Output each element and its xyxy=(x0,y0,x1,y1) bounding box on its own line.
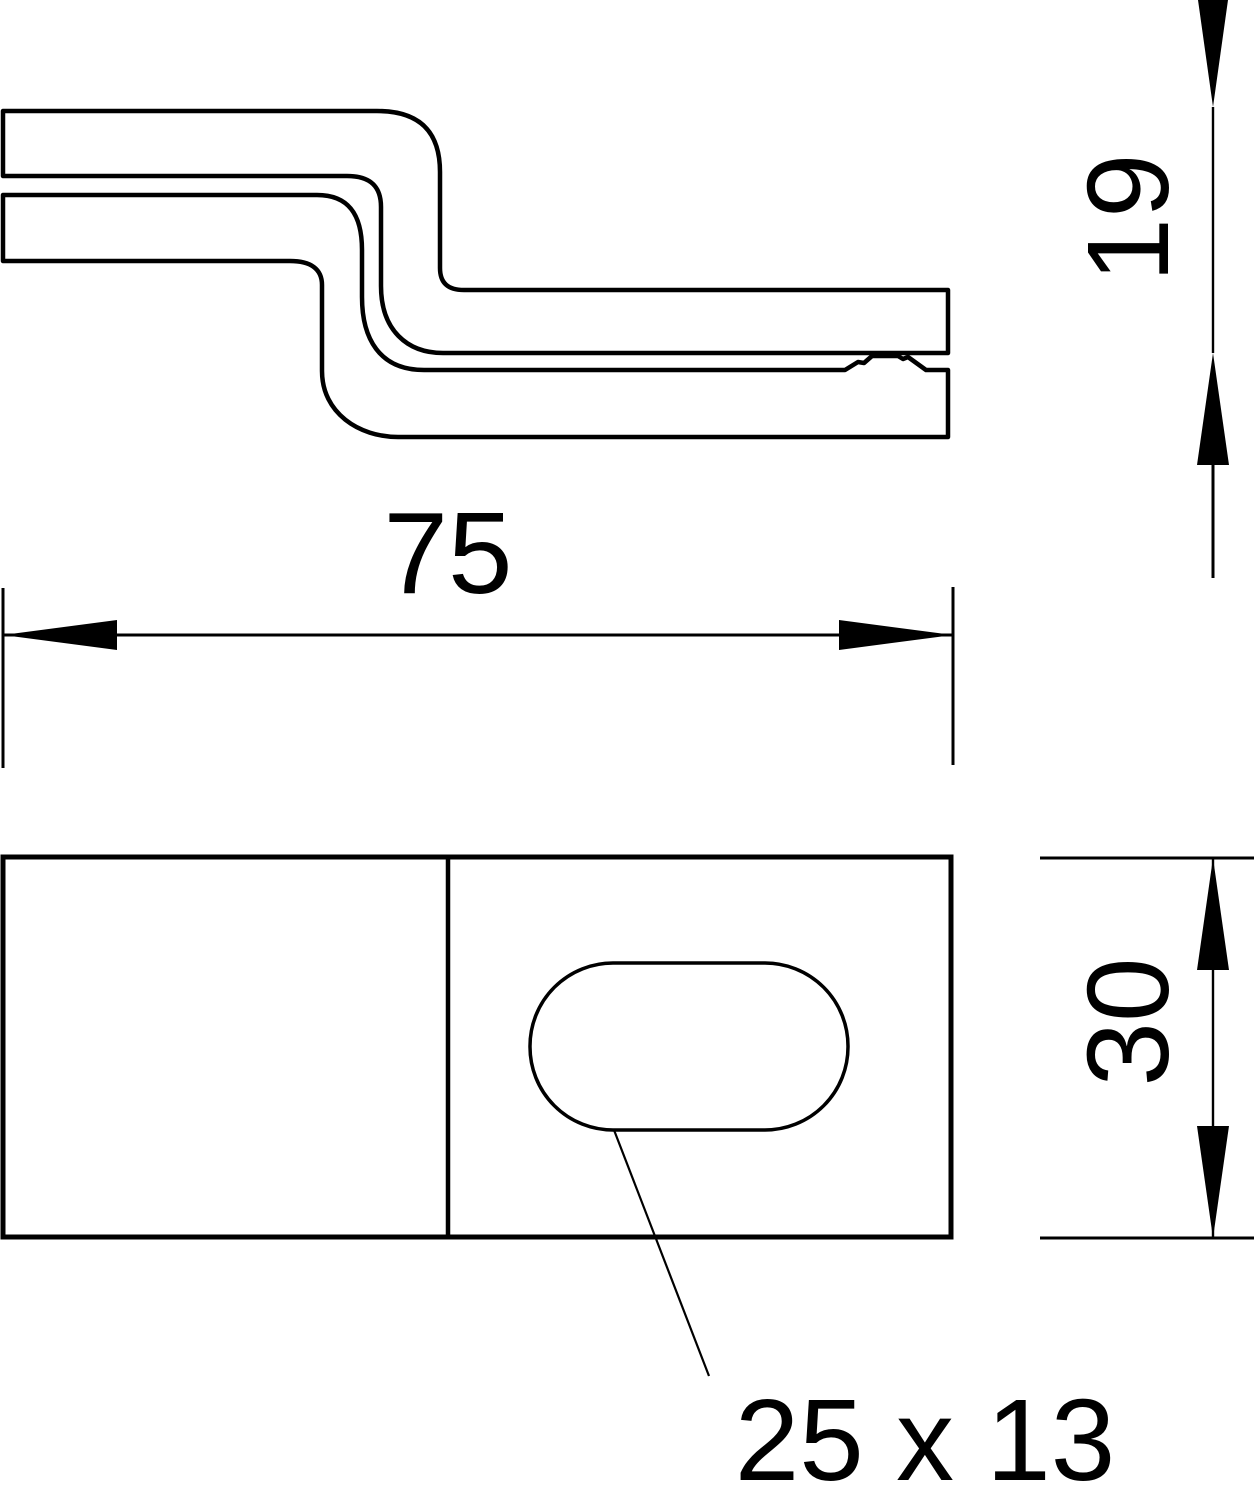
slot-outline xyxy=(530,963,848,1130)
dim-depth-arrow-bottom-icon xyxy=(1197,1126,1229,1238)
dimension-width: 75 xyxy=(3,488,953,768)
dim-height-arrow-top-icon xyxy=(1198,0,1228,107)
dimension-height: 19 xyxy=(1063,0,1229,578)
drawing-svg: 75 19 25 x 13 30 xyxy=(0,0,1258,1500)
dimension-depth: 30 xyxy=(1040,858,1254,1238)
top-view: 25 x 13 xyxy=(3,857,1115,1500)
dim-depth-label: 30 xyxy=(1063,957,1193,1086)
dim-width-arrow-right-icon xyxy=(839,620,953,650)
dim-height-arrow-bottom-icon xyxy=(1197,353,1229,465)
dim-width-arrow-left-icon xyxy=(3,620,117,650)
dim-depth-arrow-top-icon xyxy=(1197,858,1229,970)
slot-size-label: 25 x 13 xyxy=(735,1375,1116,1500)
side-view xyxy=(3,111,948,437)
dim-width-label: 75 xyxy=(383,488,512,618)
technical-drawing: 75 19 25 x 13 30 xyxy=(0,0,1258,1500)
dim-height-label: 19 xyxy=(1063,153,1193,282)
